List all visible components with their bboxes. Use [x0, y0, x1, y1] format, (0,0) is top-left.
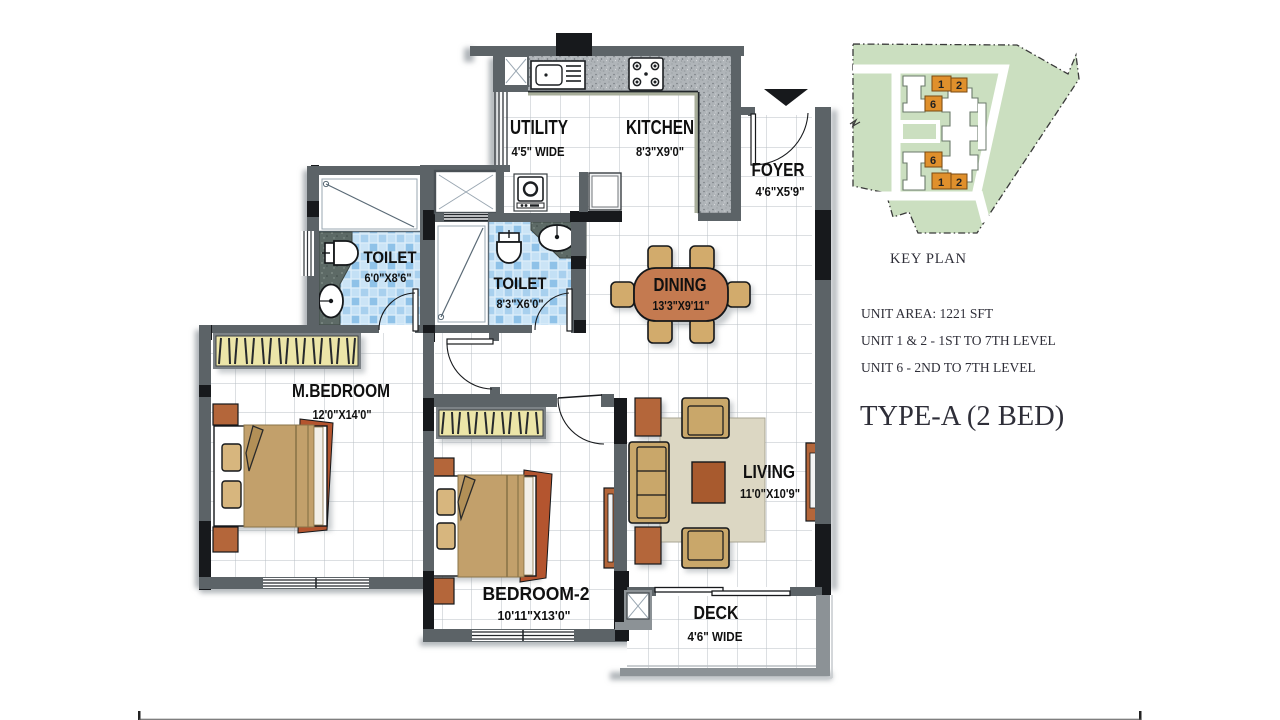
svg-text:2: 2: [956, 80, 962, 92]
svg-text:8'3"X9'0": 8'3"X9'0": [636, 144, 684, 159]
svg-text:M.BEDROOM: M.BEDROOM: [292, 381, 390, 401]
svg-text:6: 6: [930, 155, 936, 167]
svg-text:13'3"X9'11": 13'3"X9'11": [653, 299, 710, 313]
svg-text:1: 1: [938, 177, 944, 189]
svg-text:BEDROOM-2: BEDROOM-2: [483, 583, 590, 604]
svg-text:TYPE-A (2 BED): TYPE-A (2 BED): [860, 401, 1064, 432]
svg-text:UNIT 6 - 2ND TO 7TH LEVEL: UNIT 6 - 2ND TO 7TH LEVEL: [861, 360, 1036, 375]
svg-text:11'0"X10'9": 11'0"X10'9": [740, 487, 800, 501]
svg-text:DINING: DINING: [654, 274, 707, 295]
svg-text:6'0"X8'6": 6'0"X8'6": [365, 271, 412, 285]
svg-text:4'5" WIDE: 4'5" WIDE: [512, 144, 565, 159]
svg-text:12'0"X14'0": 12'0"X14'0": [313, 408, 372, 422]
svg-text:KEY PLAN: KEY PLAN: [890, 251, 967, 267]
svg-text:1: 1: [938, 79, 944, 91]
svg-text:TOILET: TOILET: [364, 248, 418, 267]
svg-text:2: 2: [956, 177, 962, 189]
svg-text:TOILET: TOILET: [494, 274, 548, 293]
svg-text:10'11"X13'0": 10'11"X13'0": [498, 609, 571, 623]
svg-text:4'6" WIDE: 4'6" WIDE: [688, 629, 743, 644]
svg-text:UNIT AREA: 1221 SFT: UNIT AREA: 1221 SFT: [861, 306, 994, 321]
svg-text:KITCHEN: KITCHEN: [626, 117, 694, 139]
svg-text:FOYER: FOYER: [752, 159, 805, 180]
svg-text:8'3"X6'0": 8'3"X6'0": [497, 297, 544, 311]
svg-text:4'6"X5'9": 4'6"X5'9": [756, 185, 805, 199]
svg-text:6: 6: [930, 99, 936, 111]
svg-text:DECK: DECK: [694, 602, 740, 623]
svg-text:LIVING: LIVING: [743, 461, 795, 482]
svg-text:UNIT 1 & 2 - 1ST TO 7TH LEVEL: UNIT 1 & 2 - 1ST TO 7TH LEVEL: [861, 333, 1056, 348]
svg-text:UTILITY: UTILITY: [510, 117, 569, 139]
